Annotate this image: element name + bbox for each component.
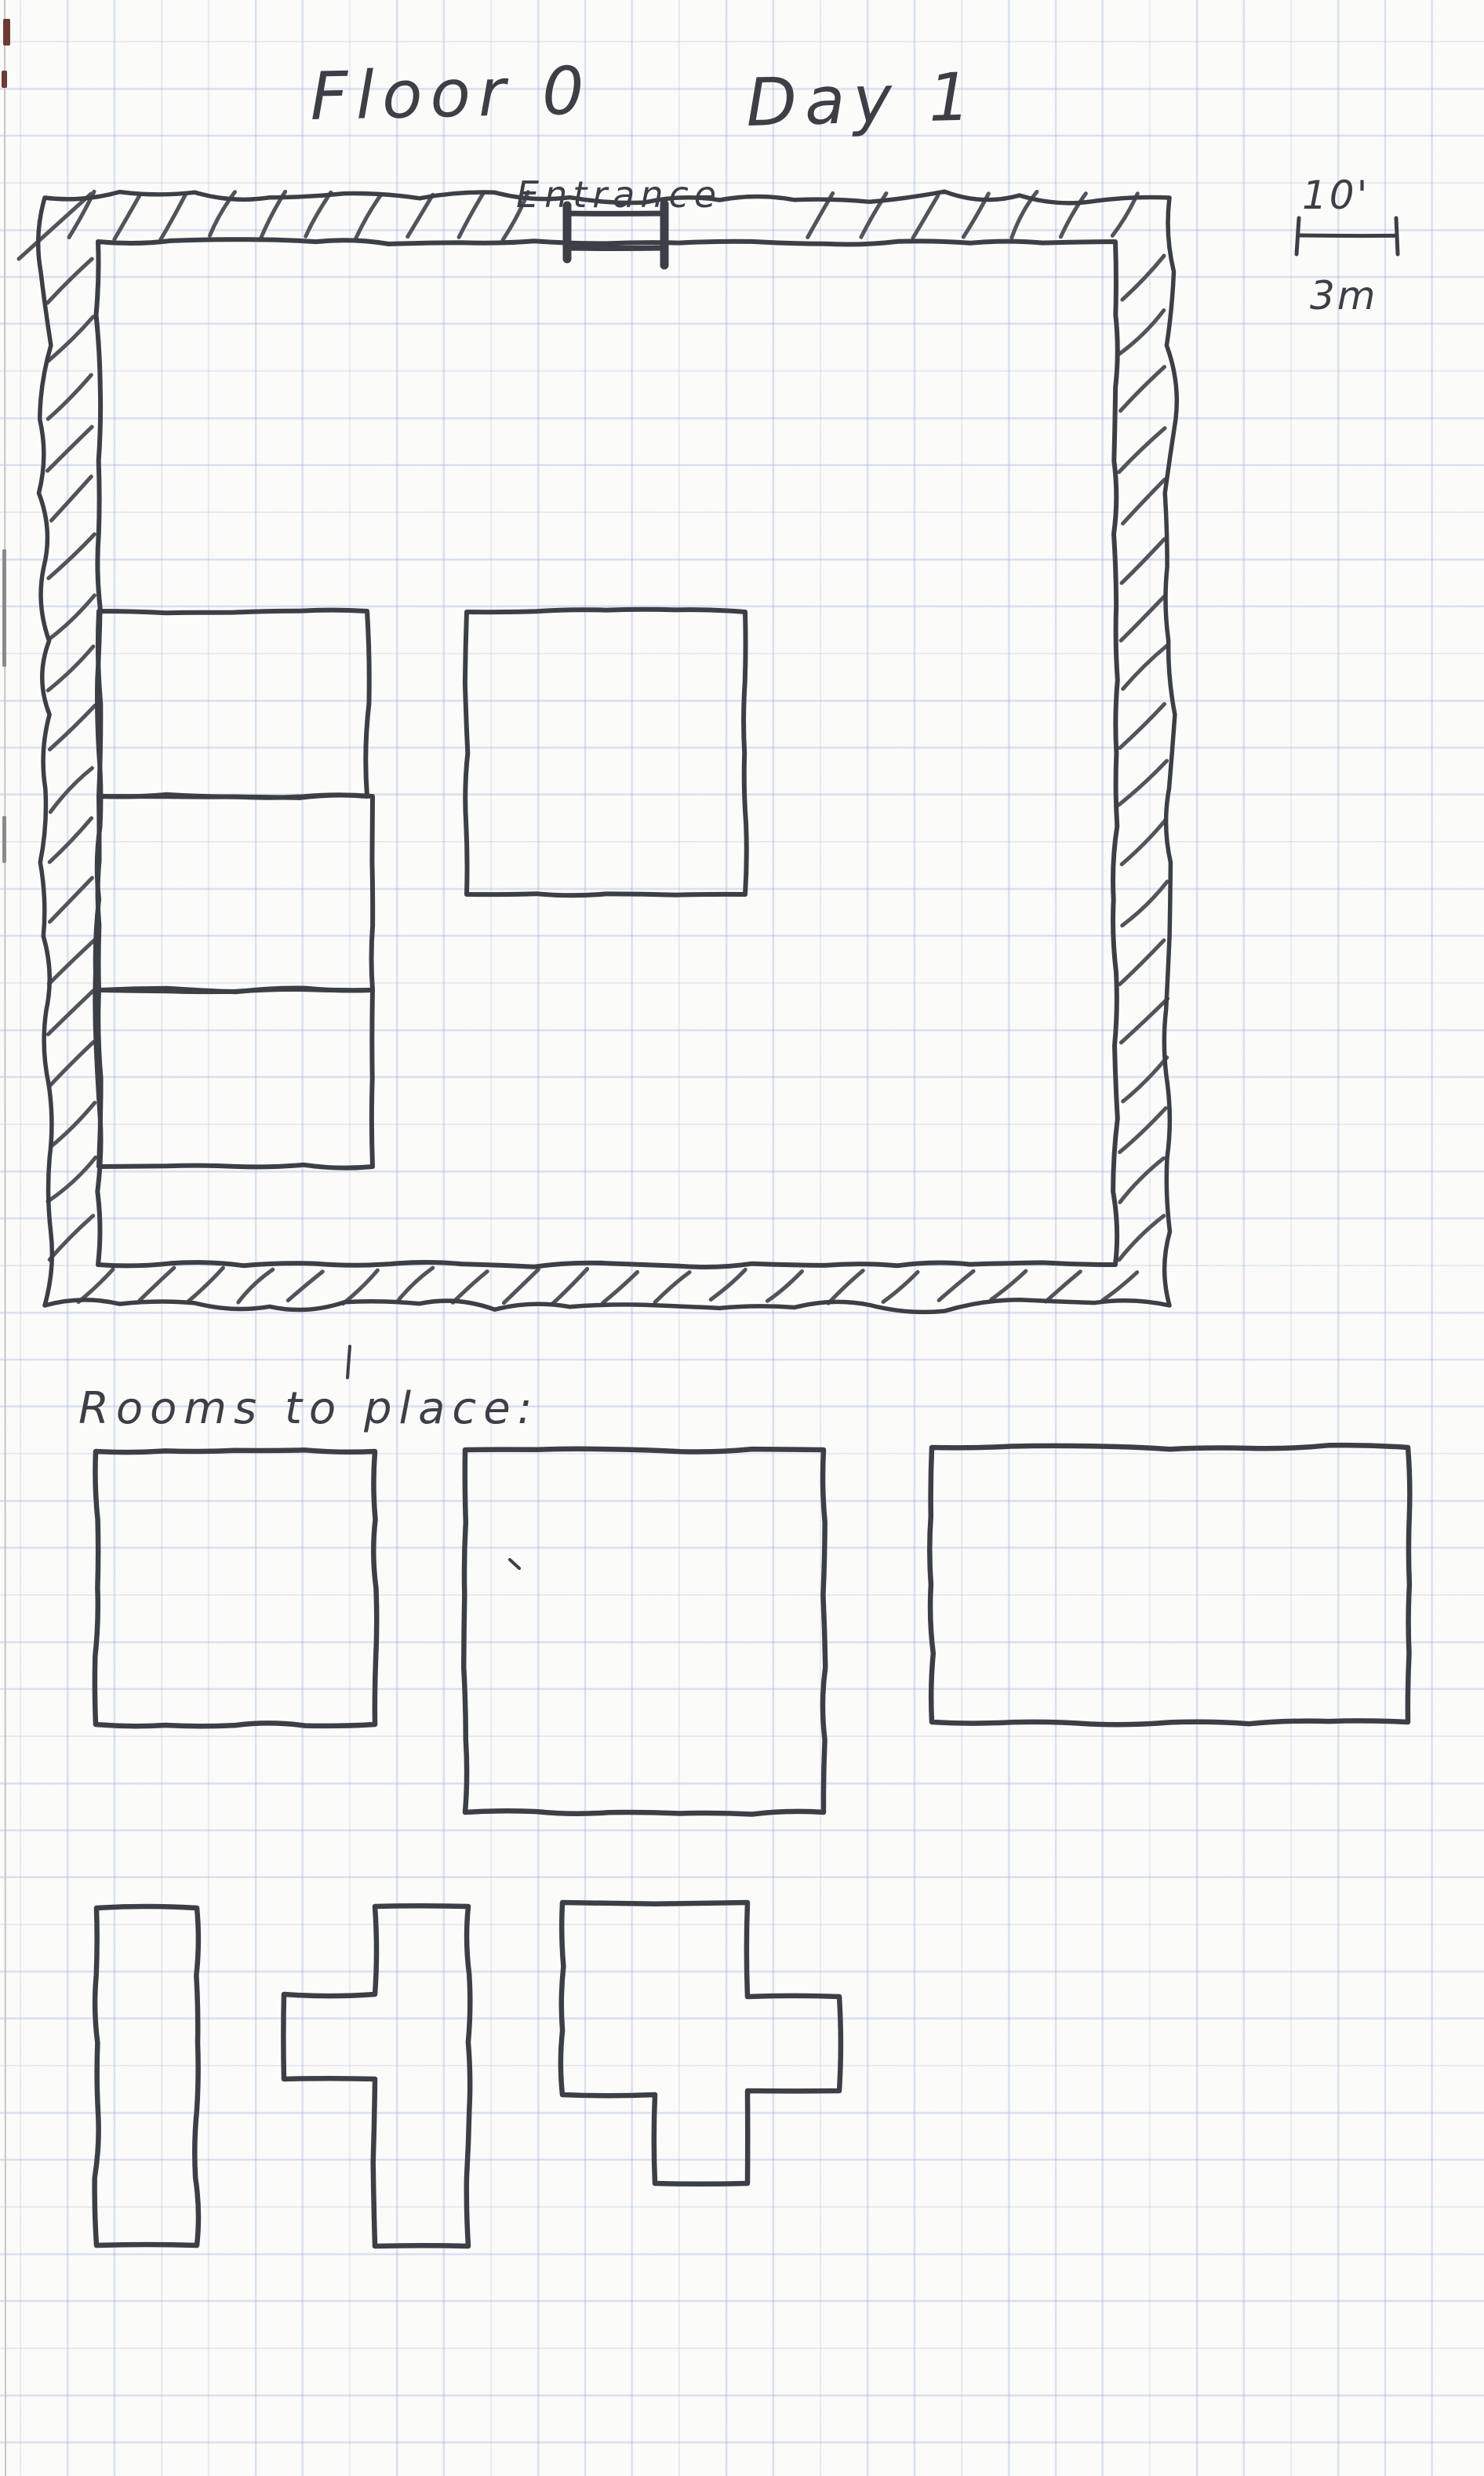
- hatch-stroke-top: [408, 195, 433, 236]
- hatch-stroke-bottom: [603, 1272, 638, 1302]
- hatch-stroke-right: [1120, 1158, 1164, 1202]
- scale-tick-left: [1297, 218, 1299, 254]
- page-edge-marks: [2, 0, 10, 2476]
- hatch-stroke-bottom: [828, 1271, 863, 1304]
- hatch-stroke-left: [48, 990, 93, 1034]
- hatch-stroke-bottom: [453, 1272, 487, 1303]
- hatch-stroke-top: [913, 195, 938, 238]
- hatch-stroke-left: [51, 476, 91, 520]
- pen-mark: [347, 1346, 350, 1378]
- hatch-stroke-left: [47, 427, 92, 471]
- place-room-narrow-rect: [95, 1906, 198, 2245]
- hatch-stroke-bottom: [188, 1268, 223, 1301]
- entrance-label: Entrance: [516, 173, 722, 216]
- hatch-stroke-bottom: [711, 1269, 745, 1299]
- floor-plan-rooms: [98, 610, 747, 1168]
- hatch-stroke-top: [356, 195, 381, 238]
- scale-marker: [1297, 218, 1398, 254]
- center-room: [465, 610, 747, 896]
- hatch-stroke-right: [1121, 596, 1164, 640]
- inner-wall-outline: [95, 239, 1118, 1267]
- hatch-stroke-left: [49, 595, 94, 639]
- hatch-stroke-bottom: [398, 1268, 433, 1300]
- scale-meters-label: 3m: [1310, 273, 1378, 319]
- hatch-stroke-left: [49, 317, 93, 361]
- hatch-stroke-bottom: [939, 1271, 973, 1300]
- hatch-stroke-top: [115, 195, 140, 239]
- title-floor-label: Floor 0: [309, 52, 592, 134]
- place-room-wide-rect: [929, 1445, 1409, 1724]
- hatch-stroke-bottom: [553, 1269, 587, 1303]
- hatch-stroke-right: [1119, 761, 1167, 805]
- rooms-to-place-heading: Rooms to place:: [78, 1383, 540, 1434]
- hatch-stroke-top: [306, 192, 331, 236]
- hatch-stroke-bottom: [883, 1272, 918, 1302]
- page-edge-mark: [3, 19, 10, 46]
- scale-bar: [1299, 235, 1396, 236]
- hatch-stroke-bottom: [1103, 1273, 1137, 1301]
- hatch-stroke-left: [49, 705, 95, 749]
- hatch-stroke-bottom: [343, 1270, 377, 1304]
- rooms-to-place-shapes: [95, 1445, 1410, 2246]
- left-room-top: [98, 610, 369, 798]
- hatch-stroke-bottom: [288, 1272, 322, 1301]
- hatch-stroke-bottom: [767, 1271, 802, 1301]
- hatch-stroke-left: [48, 1157, 96, 1201]
- hatch-stroke-bottom: [991, 1271, 1026, 1299]
- hatch-stroke-left: [48, 646, 93, 690]
- place-room-t-shape: [283, 1906, 470, 2246]
- hatch-stroke-right: [1122, 256, 1164, 300]
- hatch-stroke-right: [1122, 882, 1167, 926]
- pen-mark: [510, 1560, 519, 1568]
- graph-paper-page: Floor 0 Day 1 Entrance 10' 3m Rooms to p…: [0, 0, 1484, 2476]
- page-edge-mark: [2, 71, 7, 88]
- hatch-stroke-left: [49, 940, 94, 984]
- hatch-stroke-left: [48, 375, 91, 419]
- hatch-stroke-bottom: [238, 1269, 273, 1302]
- hatch-stroke-left: [49, 1042, 93, 1086]
- scale-tick-right: [1396, 218, 1398, 254]
- hatch-stroke-right: [1123, 1058, 1167, 1101]
- wall-hatching: [19, 191, 1168, 1303]
- hatch-stroke-bottom: [655, 1273, 689, 1302]
- hatch-stroke-top: [161, 195, 186, 240]
- hatch-stroke-right: [1123, 479, 1165, 523]
- hatch-stroke-left: [49, 1216, 93, 1260]
- page-edge-mark: [2, 549, 6, 667]
- hatch-stroke-left: [49, 534, 95, 578]
- hatch-stroke-right: [1122, 539, 1164, 583]
- page-edge-line: [5, 0, 5, 2476]
- hatch-stroke-right: [1123, 645, 1168, 689]
- hatch-stroke-right: [1120, 704, 1165, 748]
- scale-feet-label: 10': [1302, 173, 1369, 218]
- hatch-stroke-bottom: [78, 1269, 113, 1302]
- left-room-middle: [98, 795, 373, 992]
- hatch-stroke-right: [1119, 310, 1164, 354]
- hatch-stroke-bottom: [504, 1269, 538, 1303]
- place-room-plus-shape: [561, 1903, 841, 2184]
- hatch-stroke-right: [1119, 428, 1165, 472]
- title-day-label: Day 1: [745, 58, 979, 141]
- hatch-stroke-top: [1060, 194, 1086, 237]
- hatch-stroke-right: [1119, 1216, 1164, 1260]
- hatch-stroke-left: [49, 878, 92, 922]
- hatch-stroke-bottom: [140, 1268, 174, 1301]
- hatch-stroke-left: [51, 1103, 95, 1147]
- hatch-stroke-right: [1121, 999, 1167, 1043]
- page-edge-mark: [2, 816, 6, 863]
- hatch-stroke-right: [1120, 941, 1164, 985]
- hatch-stroke-left: [49, 818, 91, 862]
- left-room-bottom: [98, 988, 373, 1167]
- floor-plan-walls: [38, 191, 1177, 1312]
- outer-wall-outline: [38, 191, 1177, 1312]
- corner-overshoot-stroke: [19, 194, 91, 259]
- place-room-square: [95, 1450, 376, 1726]
- hatch-stroke-top: [459, 192, 484, 238]
- hatch-stroke-left: [50, 768, 92, 812]
- hatch-stroke-bottom: [1046, 1272, 1080, 1302]
- hatch-stroke-right: [1121, 367, 1165, 411]
- hatch-stroke-left: [48, 259, 93, 303]
- hatch-stroke-right: [1122, 821, 1165, 865]
- hatch-stroke-right: [1120, 1108, 1166, 1152]
- place-room-large-square: [464, 1449, 825, 1815]
- sketch-canvas: Floor 0 Day 1 Entrance 10' 3m Rooms to p…: [0, 0, 1484, 2476]
